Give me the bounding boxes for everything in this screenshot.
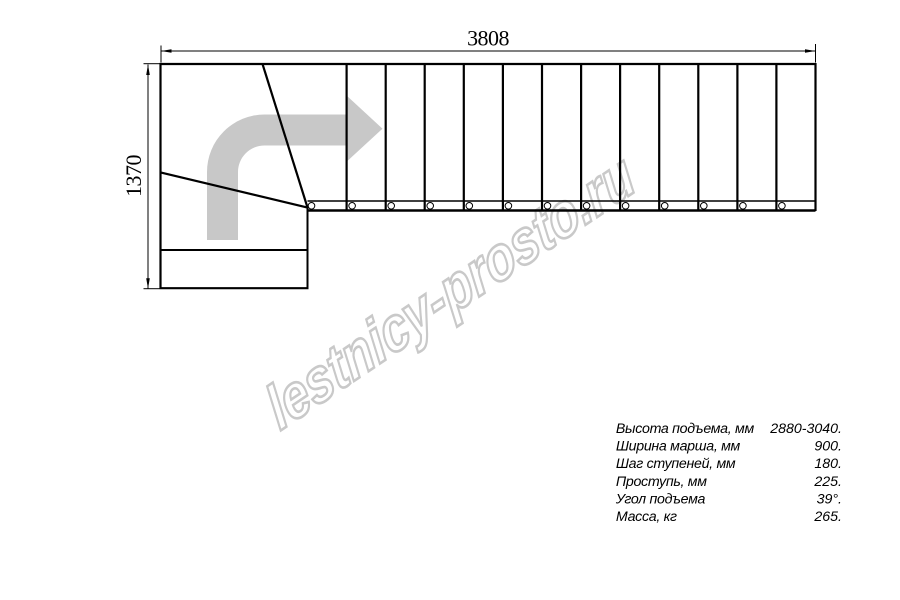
svg-text:Проступь, мм: Проступь, мм bbox=[616, 474, 707, 490]
svg-text:39°.: 39°. bbox=[817, 491, 842, 507]
svg-text:lestnicy-prosto.ru: lestnicy-prosto.ru bbox=[256, 140, 645, 443]
svg-text:225.: 225. bbox=[813, 474, 842, 490]
svg-text:1370: 1370 bbox=[121, 155, 146, 197]
svg-text:Угол подъема: Угол подъема bbox=[615, 491, 706, 507]
svg-text:2880-3040.: 2880-3040. bbox=[769, 421, 842, 437]
svg-text:265.: 265. bbox=[813, 509, 842, 525]
svg-text:Шаг ступеней, мм: Шаг ступеней, мм bbox=[616, 456, 736, 472]
svg-text:3808: 3808 bbox=[467, 26, 509, 51]
svg-text:Ширина марша, мм: Ширина марша, мм bbox=[616, 439, 741, 455]
svg-text:Высота подъема, мм: Высота подъема, мм bbox=[616, 421, 755, 437]
svg-text:Масса, кг: Масса, кг bbox=[616, 509, 677, 525]
svg-text:900.: 900. bbox=[814, 439, 842, 455]
svg-text:180.: 180. bbox=[814, 456, 842, 472]
